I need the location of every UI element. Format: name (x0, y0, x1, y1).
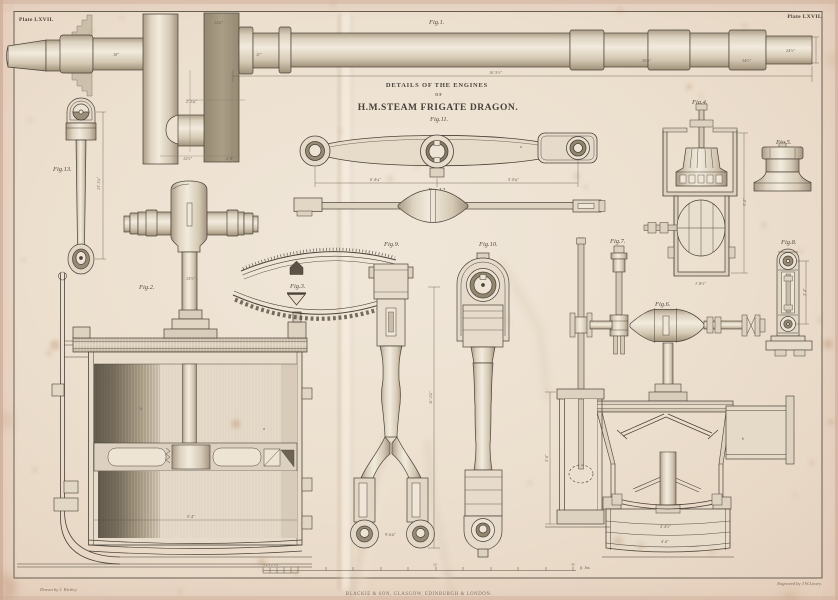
svg-text:Fig.7.: Fig.7. (609, 238, 626, 245)
svg-text:6'.4¼": 6'.4¼" (370, 177, 381, 182)
svg-text:20: 20 (433, 563, 437, 567)
svg-text:2'.8": 2'.8" (226, 156, 234, 161)
svg-text:5'.0¾": 5'.0¾" (508, 177, 519, 182)
svg-text:5'.4": 5'.4" (187, 514, 195, 519)
svg-text:Plate LXVII.: Plate LXVII. (787, 14, 822, 20)
svg-text:b: b (140, 406, 142, 411)
svg-text:1'.8½": 1'.8½" (695, 281, 706, 286)
svg-text:30½": 30½" (642, 58, 651, 63)
svg-text:Fig.9.: Fig.9. (383, 241, 400, 248)
svg-text:a: a (320, 144, 322, 149)
svg-text:12½": 12½" (183, 156, 192, 161)
svg-text:9'.6¾": 9'.6¾" (385, 532, 396, 537)
svg-text:a: a (263, 426, 265, 431)
svg-text:Fig.3.: Fig.3. (289, 283, 306, 290)
svg-text:DETAILS OF THE ENGINES: DETAILS OF THE ENGINES (386, 82, 488, 89)
svg-text:4'.6": 4'.6" (661, 539, 669, 544)
svg-text:Fig.1.: Fig.1. (428, 19, 445, 26)
svg-text:Fig.10.: Fig.10. (478, 241, 498, 248)
svg-text:BLACKIE & SON, GLASGOW, EDINBU: BLACKIE & SON, GLASGOW, EDINBURGH & LOND… (346, 592, 492, 597)
svg-text:5'.6": 5'.6" (544, 454, 549, 462)
svg-text:a: a (520, 144, 522, 149)
svg-text:5'.2": 5'.2" (742, 198, 747, 206)
svg-text:11'.1¾": 11'.1¾" (428, 391, 433, 404)
svg-text:12¾": 12¾" (214, 20, 223, 25)
svg-text:11": 11" (256, 52, 262, 57)
svg-text:Plate LXVII.: Plate LXVII. (19, 17, 54, 23)
svg-text:4'.4½": 4'.4½" (660, 524, 671, 529)
svg-text:18": 18" (113, 52, 119, 57)
svg-text:b: b (742, 436, 744, 441)
svg-text:Fig.13.: Fig.13. (52, 166, 72, 173)
svg-text:Fig.8.: Fig.8. (780, 239, 797, 246)
svg-text:13'.1¼": 13'.1¼" (96, 177, 101, 190)
svg-text:OF: OF (435, 92, 443, 97)
svg-text:40: 40 (571, 563, 575, 567)
svg-text:ft. Ins.: ft. Ins. (580, 565, 591, 570)
svg-text:Fig.6.: Fig.6. (654, 301, 671, 308)
svg-text:2'.3¾": 2'.3¾" (186, 99, 197, 104)
svg-text:Drawn by J. Kirtley.: Drawn by J. Kirtley. (39, 587, 77, 592)
svg-text:16'.5½": 16'.5½" (489, 70, 502, 75)
svg-text:24½": 24½" (786, 48, 795, 53)
svg-text:34½": 34½" (742, 58, 751, 63)
svg-text:15½": 15½" (186, 276, 195, 281)
svg-text:Fig.11.: Fig.11. (429, 116, 449, 123)
svg-text:3'.4": 3'.4" (802, 288, 807, 296)
svg-text:Fig.2.: Fig.2. (138, 284, 155, 291)
svg-text:H.M.STEAM FRIGATE DRAGON.: H.M.STEAM FRIGATE DRAGON. (358, 103, 519, 113)
svg-text:Engraved by J.W.Lowry.: Engraved by J.W.Lowry. (776, 581, 822, 586)
